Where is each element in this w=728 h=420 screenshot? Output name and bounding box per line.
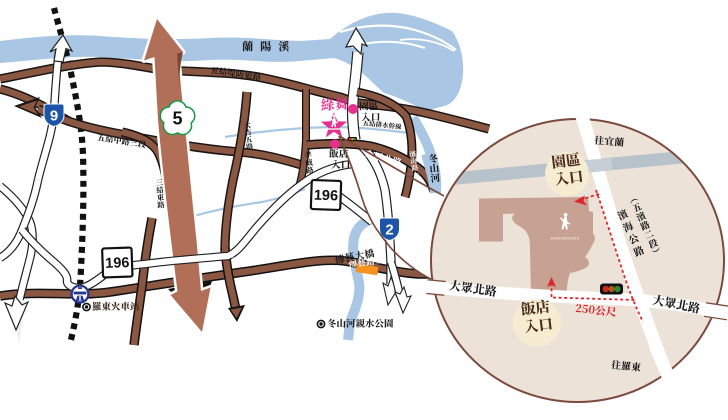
svg-text:DANCEWOODS: DANCEWOODS: [551, 237, 580, 241]
svg-text:2: 2: [385, 221, 393, 238]
svg-text:9: 9: [50, 107, 58, 124]
svg-text:5: 5: [172, 108, 182, 128]
svg-text:196: 196: [105, 255, 130, 272]
svg-text:196: 196: [314, 188, 339, 205]
